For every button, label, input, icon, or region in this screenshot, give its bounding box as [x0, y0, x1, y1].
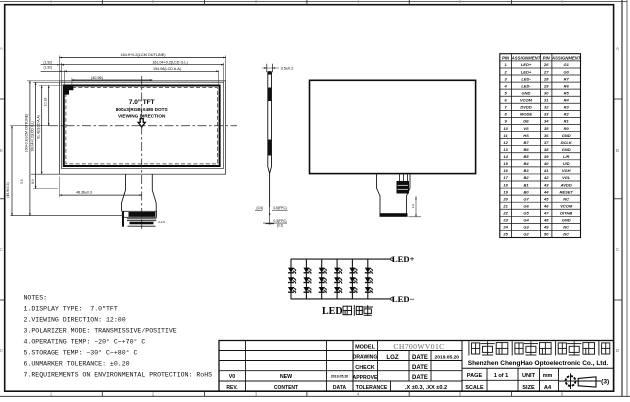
svg-text:22: 22 [502, 211, 508, 216]
svg-text:CHECK: CHECK [355, 365, 375, 371]
svg-text:DCLK: DCLK [561, 140, 573, 145]
svg-text:REV.: REV. [226, 385, 238, 391]
svg-text:1 of 1: 1 of 1 [494, 373, 509, 379]
svg-text:LED+: LED+ [521, 62, 532, 67]
svg-text:B3: B3 [523, 168, 529, 173]
svg-text:29: 29 [543, 83, 549, 88]
svg-text:26: 26 [543, 62, 549, 67]
svg-text:PIN: PIN [502, 55, 510, 60]
svg-text:Shenzhen ChengHao Optoelectron: Shenzhen ChengHao Optoelectronic Co., Lt… [468, 360, 609, 367]
svg-text:34: 34 [544, 119, 549, 124]
svg-text:10.16: 10.16 [44, 98, 48, 107]
svg-text:17: 17 [503, 175, 508, 180]
svg-text:154.08(LCD A.A): 154.08(LCD A.A) [153, 67, 181, 71]
svg-text:GND: GND [562, 218, 571, 223]
svg-text:B1: B1 [523, 182, 529, 187]
svg-text:R4: R4 [564, 98, 570, 103]
svg-text:GND: GND [562, 133, 571, 138]
svg-text:AVDD: AVDD [560, 182, 572, 187]
svg-text:B4: B4 [523, 161, 529, 166]
svg-text:0.3(FPC): 0.3(FPC) [274, 219, 287, 223]
svg-text:50: 50 [544, 232, 549, 237]
svg-text:(40.96): (40.96) [91, 76, 103, 80]
svg-text:G4: G4 [523, 218, 529, 223]
svg-text:SIZE: SIZE [522, 385, 535, 391]
svg-text:1.0: 1.0 [411, 204, 415, 209]
svg-text:16: 16 [503, 168, 508, 173]
svg-text:NC: NC [563, 232, 569, 237]
svg-text:UNIT: UNIT [522, 373, 536, 379]
svg-text:G0: G0 [564, 69, 570, 74]
svg-text:LGZ: LGZ [386, 354, 399, 361]
svg-text:47: 47 [543, 211, 549, 216]
svg-text:44: 44 [543, 189, 549, 194]
svg-text:33: 33 [544, 112, 549, 117]
svg-text:LED: LED [322, 306, 343, 317]
svg-text:45: 45 [543, 196, 549, 201]
svg-text:MODEL: MODEL [355, 345, 376, 351]
svg-text:15: 15 [503, 161, 508, 166]
svg-text:B7: B7 [523, 140, 529, 145]
svg-text:DATE: DATE [412, 365, 428, 371]
svg-text:46: 46 [543, 203, 549, 208]
svg-text:13: 13 [503, 147, 508, 152]
svg-text:LED+: LED+ [521, 69, 532, 74]
svg-text:3.5±0.2: 3.5±0.2 [281, 65, 294, 70]
svg-text:L/R: L/R [563, 154, 570, 159]
svg-text:43: 43 [543, 182, 549, 187]
svg-text:30: 30 [544, 90, 549, 95]
svg-text:A: A [616, 46, 619, 51]
svg-text:VCOM: VCOM [520, 98, 533, 103]
svg-text:R7: R7 [564, 76, 570, 81]
svg-text:10: 10 [503, 126, 508, 131]
svg-text:B0: B0 [523, 189, 529, 194]
svg-text:NOTES:: NOTES: [24, 294, 48, 301]
svg-text:PIN: PIN [543, 55, 551, 60]
svg-text:CH700WV01C: CH700WV01C [393, 342, 444, 351]
svg-text:48.36±0.3: 48.36±0.3 [76, 190, 92, 194]
svg-text:40: 40 [543, 161, 549, 166]
svg-text:PAGE: PAGE [467, 373, 483, 379]
svg-text:DRAWING: DRAWING [353, 355, 378, 361]
svg-text:99.04+0.2(LCD G.L): 99.04+0.2(LCD G.L) [30, 121, 34, 152]
svg-text:LED-: LED- [521, 83, 531, 88]
svg-text:161.04+0.2(LCD G.L): 161.04+0.2(LCD G.L) [152, 60, 187, 64]
svg-text:5.STORAGE TEMP: −30° C~+80° C: 5.STORAGE TEMP: −30° C~+80° C [24, 348, 138, 356]
svg-text:7.0” TFT: 7.0” TFT [129, 99, 155, 106]
svg-text:7.REQUIREMENTS ON ENVIRONMENTA: 7.REQUIREMENTS ON ENVIRONMENTAL PROTECTI… [24, 371, 213, 378]
svg-text:R3: R3 [564, 105, 570, 110]
svg-text:100+0.2(LCM OUTLINE): 100+0.2(LCM OUTLINE) [25, 114, 29, 153]
svg-text:24: 24 [502, 225, 508, 230]
svg-text:B5: B5 [523, 154, 529, 159]
svg-text:LED+: LED+ [392, 254, 415, 264]
svg-text:DATE: DATE [412, 355, 428, 361]
svg-text:20: 20 [502, 196, 508, 201]
svg-text:91.42(LCD A.A): 91.42(LCD A.A) [37, 115, 41, 139]
svg-text:35: 35 [544, 126, 549, 131]
svg-text:B: B [616, 148, 619, 153]
svg-text:LED-: LED- [521, 76, 531, 81]
svg-text:VCOM: VCOM [560, 203, 573, 208]
svg-text:27: 27 [543, 69, 549, 74]
svg-text:0.5(FPC): 0.5(FPC) [273, 206, 286, 210]
svg-text:VGL: VGL [562, 175, 571, 180]
svg-text:V0: V0 [229, 374, 236, 380]
svg-text:(1.92): (1.92) [43, 66, 52, 70]
svg-text:B: B [0, 148, 3, 153]
svg-text:6.UNMARKER TOLERANCE: ±0.20: 6.UNMARKER TOLERANCE: ±0.20 [24, 360, 130, 367]
svg-text:B2: B2 [523, 175, 529, 180]
svg-text:3.POLARIZER MODE: TRANSMISSIVE: 3.POLARIZER MODE: TRANSMISSIVE/POSITIVE [24, 327, 177, 334]
svg-text:37: 37 [544, 140, 549, 145]
svg-text:HS: HS [523, 133, 529, 138]
svg-text:2.VIEWING DIRECTION: 12:00: 2.VIEWING DIRECTION: 12:00 [24, 316, 126, 323]
svg-text:A4: A4 [544, 385, 552, 391]
svg-text:.X ±0.3, .XX ±0.2: .X ±0.3, .XX ±0.2 [405, 385, 447, 391]
svg-text:U/D: U/D [563, 161, 570, 166]
svg-text:(0.2): (0.2) [277, 223, 284, 227]
svg-text:VGH: VGH [562, 168, 571, 173]
svg-text:GND: GND [522, 90, 531, 95]
svg-text:G3: G3 [523, 225, 529, 230]
svg-text:23: 23 [502, 218, 508, 223]
svg-text:RESET: RESET [560, 189, 574, 194]
svg-text:41: 41 [543, 168, 549, 173]
svg-text:R0: R0 [564, 126, 570, 131]
svg-text:4-2.0: 4-2.0 [158, 220, 165, 224]
svg-text:800x3(RGB)X480 DOTS: 800x3(RGB)X480 DOTS [116, 107, 168, 112]
svg-text:CONTENT: CONTENT [274, 385, 298, 391]
svg-text:5.9: 5.9 [20, 179, 24, 184]
svg-text:LED−: LED− [392, 294, 415, 304]
svg-text:DATE: DATE [412, 375, 428, 381]
svg-text:R5: R5 [564, 90, 570, 95]
svg-text:DE: DE [523, 119, 529, 124]
svg-text:G1: G1 [564, 62, 570, 67]
svg-text:164.9+0.2(LCM OUTLINE): 164.9+0.2(LCM OUTLINE) [120, 53, 166, 57]
svg-text:38: 38 [544, 147, 549, 152]
svg-text:G7: G7 [523, 196, 529, 201]
svg-text:25: 25 [502, 232, 508, 237]
svg-text:42: 42 [543, 175, 549, 180]
svg-text:DVDD: DVDD [520, 105, 531, 110]
svg-text:4.OPERATING TEMP: −20° C~+70°: 4.OPERATING TEMP: −20° C~+70° C [24, 337, 146, 345]
svg-text:(45.9±0.3): (45.9±0.3) [6, 182, 10, 197]
svg-text:G2: G2 [523, 232, 529, 237]
svg-text:G5: G5 [523, 211, 529, 216]
svg-text:ASSIGNMENT: ASSIGNMENT [511, 55, 541, 60]
svg-text:mm: mm [543, 373, 553, 379]
svg-text:19: 19 [503, 189, 508, 194]
svg-text:A: A [0, 46, 3, 51]
svg-text:R2: R2 [564, 112, 570, 117]
svg-text:NC: NC [563, 225, 569, 230]
svg-text:18: 18 [503, 182, 508, 187]
svg-text:SCALE: SCALE [465, 385, 484, 391]
svg-text:2019.05.20: 2019.05.20 [331, 374, 349, 378]
svg-text:39: 39 [544, 154, 549, 159]
svg-text:28: 28 [543, 76, 549, 81]
svg-text:ASSIGNMENT: ASSIGNMENT [551, 55, 581, 60]
svg-text:VIEWING DIRECTION: VIEWING DIRECTION [118, 113, 166, 118]
svg-text:(3): (3) [601, 379, 609, 386]
svg-text:(0.5): (0.5) [257, 206, 264, 210]
svg-text:DATA: DATA [333, 385, 347, 391]
svg-text:36: 36 [544, 133, 549, 138]
svg-text:8.9: 8.9 [31, 179, 35, 184]
svg-text:48: 48 [543, 218, 549, 223]
svg-text:NC: NC [563, 196, 569, 201]
svg-text:VS: VS [523, 126, 529, 131]
svg-text:1.DISPLAY TYPE: 7.0″TFT: 1.DISPLAY TYPE: 7.0″TFT [24, 305, 118, 312]
svg-text:(1.92): (1.92) [43, 60, 52, 64]
svg-text:31: 31 [544, 98, 549, 103]
svg-text:R6: R6 [564, 83, 570, 88]
svg-text:B6: B6 [523, 147, 529, 152]
svg-text:14: 14 [503, 154, 508, 159]
svg-text:APPROVE: APPROVE [353, 375, 379, 381]
svg-text:R1: R1 [564, 119, 570, 124]
svg-text:GND: GND [562, 147, 571, 152]
svg-text:49: 49 [543, 225, 549, 230]
svg-text:32: 32 [544, 105, 549, 110]
svg-text:NEW: NEW [280, 374, 292, 380]
svg-text:MODE: MODE [520, 112, 532, 117]
svg-text:2019.05.20: 2019.05.20 [435, 355, 460, 361]
svg-text:21: 21 [502, 203, 508, 208]
svg-text:12: 12 [503, 140, 508, 145]
svg-text:G6: G6 [523, 203, 529, 208]
svg-text:TOLERANCE: TOLERANCE [356, 385, 388, 391]
svg-text:DITHB: DITHB [560, 211, 572, 216]
